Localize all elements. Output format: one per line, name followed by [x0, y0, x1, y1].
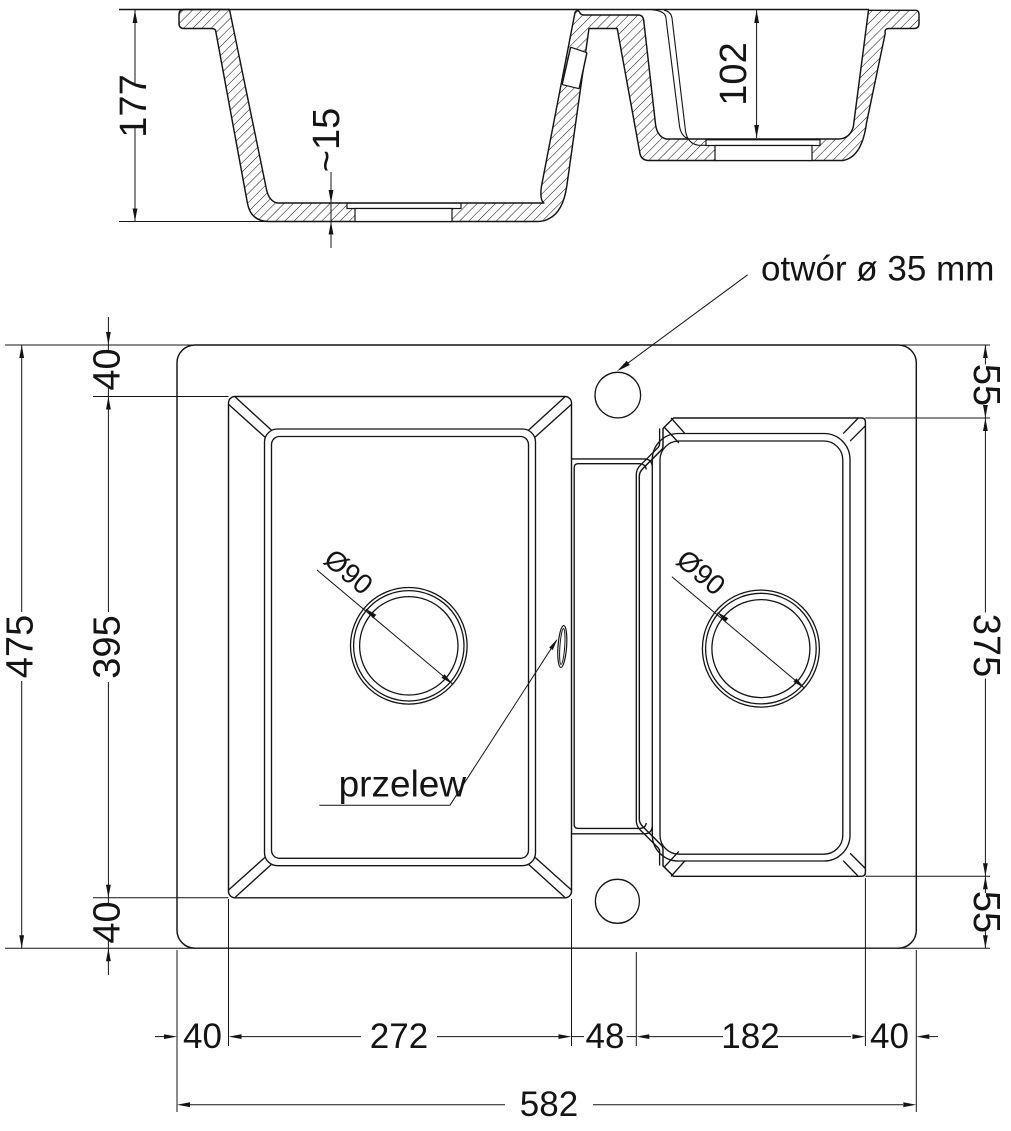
- svg-text:375: 375: [965, 614, 1007, 677]
- svg-text:475: 475: [0, 615, 42, 678]
- svg-text:102: 102: [713, 42, 755, 105]
- svg-text:55: 55: [965, 364, 1007, 406]
- svg-text:~15: ~15: [306, 108, 348, 172]
- svg-text:40: 40: [870, 1017, 909, 1056]
- svg-text:40: 40: [87, 901, 129, 943]
- svg-text:przelew: przelew: [339, 764, 467, 805]
- svg-text:55: 55: [965, 891, 1007, 933]
- svg-text:582: 582: [520, 1085, 578, 1124]
- svg-text:395: 395: [87, 615, 129, 678]
- svg-text:48: 48: [586, 1017, 625, 1056]
- svg-text:40: 40: [87, 348, 129, 390]
- svg-text:177: 177: [113, 74, 155, 137]
- svg-text:272: 272: [370, 1017, 428, 1056]
- svg-text:182: 182: [721, 1017, 779, 1056]
- svg-text:40: 40: [183, 1017, 222, 1056]
- svg-text:otwór ø 35 mm: otwór ø 35 mm: [761, 250, 994, 289]
